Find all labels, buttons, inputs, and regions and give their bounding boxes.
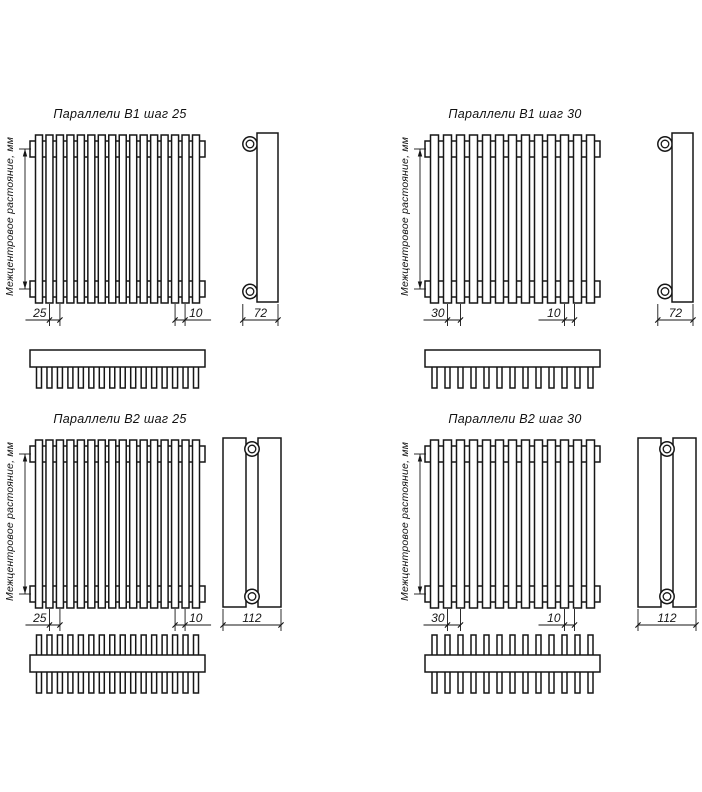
comb-tooth: [173, 635, 178, 657]
comb-tooth: [523, 635, 528, 657]
comb-tooth: [68, 366, 73, 388]
drawing-canvas: Параллели В1 шаг 25 Параллели В1 шаг 30 …: [0, 0, 702, 792]
comb-tooth: [141, 366, 146, 388]
comb-tooth: [120, 671, 125, 693]
radiator-tube: [46, 135, 53, 303]
comb-bar: [30, 350, 205, 367]
dim-arrow-up: [23, 454, 27, 462]
quadrant-drawing-b1-30: 301072: [395, 100, 699, 400]
comb-tooth: [57, 635, 62, 657]
side-view-body: [672, 133, 693, 302]
comb-tooth: [57, 366, 62, 388]
radiator-tube: [67, 440, 74, 608]
comb-bar: [425, 350, 600, 367]
radiator-tube: [193, 440, 200, 608]
depth-dimension-label: 72: [254, 306, 268, 320]
radiator-tube: [172, 135, 179, 303]
depth-dimension-label: 112: [657, 611, 676, 625]
comb-tooth: [110, 671, 115, 693]
radiator-tube: [587, 440, 595, 608]
comb-tooth: [89, 635, 94, 657]
dim-arrow-up: [23, 149, 27, 157]
radiator-tube: [36, 135, 43, 303]
tube-dimension-label: 10: [547, 306, 561, 320]
comb-tooth: [131, 635, 136, 657]
comb-tooth: [47, 635, 52, 657]
radiator-tube: [509, 440, 517, 608]
comb-tooth: [471, 635, 476, 657]
comb-tooth: [37, 671, 42, 693]
radiator-tube: [182, 135, 189, 303]
comb-tooth: [110, 366, 115, 388]
radiator-tube: [496, 440, 504, 608]
comb-tooth: [562, 366, 567, 388]
comb-tooth: [536, 366, 541, 388]
comb-tooth: [183, 635, 188, 657]
comb-tooth: [162, 366, 167, 388]
comb-tooth: [432, 635, 437, 657]
radiator-tube: [470, 440, 478, 608]
dim-arrow-up: [418, 454, 422, 462]
comb-tooth: [458, 671, 463, 693]
comb-tooth: [588, 671, 593, 693]
pitch-dimension-label: 30: [431, 306, 445, 320]
tube-dimension-label: 10: [547, 611, 561, 625]
radiator-tube: [130, 440, 137, 608]
radiator-tube: [109, 440, 116, 608]
comb-tooth: [549, 366, 554, 388]
radiator-tube: [561, 135, 569, 303]
comb-tooth: [497, 671, 502, 693]
radiator-tube: [522, 135, 530, 303]
side-connection-inner: [246, 288, 254, 296]
radiator-tube: [140, 135, 147, 303]
comb-tooth: [131, 671, 136, 693]
comb-tooth: [99, 635, 104, 657]
dim-arrow-down: [23, 587, 27, 595]
radiator-tube: [574, 135, 582, 303]
comb-tooth: [37, 366, 42, 388]
radiator-tube: [161, 440, 168, 608]
comb-tooth: [484, 635, 489, 657]
tube-dimension-label: 10: [189, 611, 203, 625]
dim-arrow-down: [418, 587, 422, 595]
comb-tooth: [523, 671, 528, 693]
radiator-tube: [182, 440, 189, 608]
comb-tooth: [510, 366, 515, 388]
comb-tooth: [183, 366, 188, 388]
quadrant-drawing-b2-30: 3010112: [395, 405, 699, 705]
radiator-tube: [130, 135, 137, 303]
radiator-tube: [151, 135, 158, 303]
comb-tooth: [497, 635, 502, 657]
comb-tooth: [183, 671, 188, 693]
radiator-tube: [36, 440, 43, 608]
side-connection-inner: [663, 593, 671, 601]
pitch-dimension-label: 25: [32, 306, 47, 320]
side-connection-inner: [248, 445, 256, 453]
radiator-tube: [561, 440, 569, 608]
comb-tooth: [484, 366, 489, 388]
radiator-tube: [56, 135, 63, 303]
pitch-dimension-label: 25: [32, 611, 47, 625]
comb-tooth: [141, 635, 146, 657]
radiator-tube: [483, 440, 491, 608]
comb-tooth: [99, 366, 104, 388]
side-connection-inner: [661, 140, 669, 148]
comb-tooth: [562, 671, 567, 693]
radiator-tube: [444, 440, 452, 608]
radiator-tube: [172, 440, 179, 608]
comb-tooth: [152, 635, 157, 657]
quadrant-drawing-b1-25: 251072: [0, 100, 304, 400]
comb-tooth: [120, 635, 125, 657]
comb-tooth: [575, 366, 580, 388]
comb-tooth: [471, 366, 476, 388]
radiator-tube: [431, 135, 439, 303]
side-connection-inner: [661, 288, 669, 296]
radiator-tube: [98, 135, 105, 303]
comb-tooth: [588, 366, 593, 388]
comb-tooth: [173, 671, 178, 693]
radiator-tube: [587, 135, 595, 303]
radiator-tube: [444, 135, 452, 303]
comb-tooth: [141, 671, 146, 693]
comb-tooth: [432, 366, 437, 388]
comb-tooth: [78, 671, 83, 693]
comb-tooth: [194, 671, 199, 693]
dim-arrow-down: [418, 282, 422, 290]
comb-tooth: [89, 671, 94, 693]
comb-bar: [425, 655, 600, 672]
comb-bar: [30, 655, 205, 672]
comb-tooth: [575, 635, 580, 657]
comb-tooth: [484, 671, 489, 693]
comb-tooth: [458, 366, 463, 388]
radiator-tube: [161, 135, 168, 303]
side-connection-inner: [663, 445, 671, 453]
comb-tooth: [78, 635, 83, 657]
radiator-tube: [457, 440, 465, 608]
radiator-tube: [88, 135, 95, 303]
pitch-dimension-label: 30: [431, 611, 445, 625]
radiator-tube: [119, 135, 126, 303]
radiator-tube: [67, 135, 74, 303]
comb-tooth: [120, 366, 125, 388]
radiator-tube: [574, 440, 582, 608]
quadrant-drawing-b2-25: 2510112: [0, 405, 304, 705]
comb-tooth: [152, 671, 157, 693]
depth-dimension-label: 112: [242, 611, 261, 625]
comb-tooth: [536, 671, 541, 693]
comb-tooth: [57, 671, 62, 693]
comb-tooth: [549, 671, 554, 693]
comb-tooth: [575, 671, 580, 693]
comb-tooth: [510, 671, 515, 693]
side-connection-inner: [248, 593, 256, 601]
radiator-tube: [77, 440, 84, 608]
comb-tooth: [78, 366, 83, 388]
depth-dimension-label: 72: [669, 306, 683, 320]
comb-tooth: [194, 366, 199, 388]
comb-tooth: [458, 635, 463, 657]
radiator-tube: [119, 440, 126, 608]
comb-tooth: [549, 635, 554, 657]
comb-tooth: [162, 635, 167, 657]
side-view-body-back-row: [673, 438, 696, 607]
comb-tooth: [510, 635, 515, 657]
comb-tooth: [47, 671, 52, 693]
comb-tooth: [432, 671, 437, 693]
radiator-tube: [109, 135, 116, 303]
radiator-tube: [140, 440, 147, 608]
radiator-tube: [496, 135, 504, 303]
comb-tooth: [194, 635, 199, 657]
comb-tooth: [47, 366, 52, 388]
side-view-body-front-row: [223, 438, 246, 607]
dim-arrow-down: [23, 282, 27, 290]
radiator-tube: [457, 135, 465, 303]
side-view-body-back-row: [258, 438, 281, 607]
comb-tooth: [588, 635, 593, 657]
comb-tooth: [162, 671, 167, 693]
radiator-tube: [56, 440, 63, 608]
side-connection-inner: [246, 140, 254, 148]
radiator-tube: [46, 440, 53, 608]
radiator-tube: [483, 135, 491, 303]
radiator-tube: [98, 440, 105, 608]
comb-tooth: [536, 635, 541, 657]
radiator-tube: [77, 135, 84, 303]
radiator-tube: [548, 135, 556, 303]
comb-tooth: [173, 366, 178, 388]
radiator-tube: [535, 135, 543, 303]
comb-tooth: [37, 635, 42, 657]
comb-tooth: [497, 366, 502, 388]
radiator-tube: [535, 440, 543, 608]
comb-tooth: [445, 366, 450, 388]
comb-tooth: [445, 671, 450, 693]
comb-tooth: [89, 366, 94, 388]
dim-arrow-up: [418, 149, 422, 157]
radiator-tube: [509, 135, 517, 303]
comb-tooth: [445, 635, 450, 657]
radiator-tube: [548, 440, 556, 608]
comb-tooth: [110, 635, 115, 657]
comb-tooth: [152, 366, 157, 388]
comb-tooth: [471, 671, 476, 693]
comb-tooth: [99, 671, 104, 693]
side-view-body-front-row: [638, 438, 661, 607]
radiator-tube: [151, 440, 158, 608]
side-view-body: [257, 133, 278, 302]
radiator-tube: [88, 440, 95, 608]
comb-tooth: [131, 366, 136, 388]
comb-tooth: [523, 366, 528, 388]
radiator-tube: [193, 135, 200, 303]
tube-dimension-label: 10: [189, 306, 203, 320]
radiator-tube: [431, 440, 439, 608]
radiator-tube: [470, 135, 478, 303]
comb-tooth: [562, 635, 567, 657]
comb-tooth: [68, 635, 73, 657]
comb-tooth: [68, 671, 73, 693]
radiator-tube: [522, 440, 530, 608]
